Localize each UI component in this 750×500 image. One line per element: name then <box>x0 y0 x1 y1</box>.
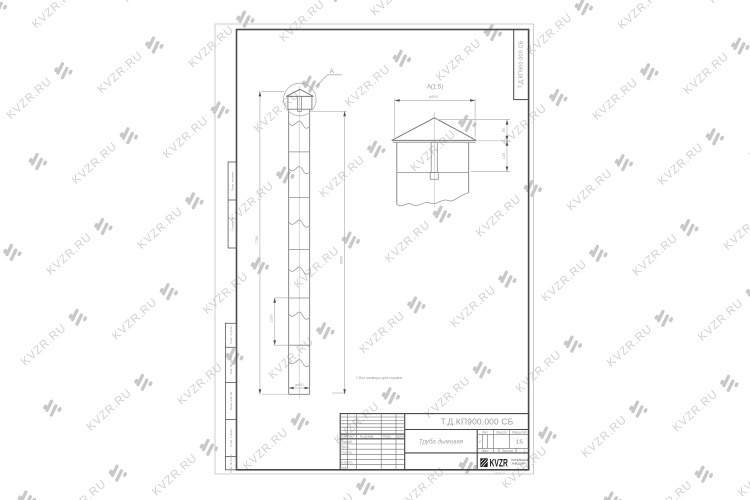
svg-text:KVZR.RU: KVZR.RU <box>682 51 732 97</box>
svg-text:Масса: Масса <box>496 430 506 434</box>
svg-text:7760: 7760 <box>255 236 259 244</box>
svg-text:KVZR.RU: KVZR.RU <box>110 296 160 342</box>
svg-text:№ докум.: № докум. <box>360 435 374 439</box>
svg-text:1 Все размеры для справок: 1 Все размеры для справок <box>356 376 403 380</box>
svg-text:KVZR.RU: KVZR.RU <box>525 11 575 57</box>
svg-text:Справ. №: Справ. № <box>230 216 234 230</box>
svg-text:1: 1 <box>524 449 526 453</box>
svg-text:KVZR.RU: KVZR.RU <box>605 323 655 369</box>
svg-text:80: 80 <box>502 128 506 132</box>
svg-text:KVZR.RU: KVZR.RU <box>696 297 746 343</box>
svg-text:KVZR.RU: KVZR.RU <box>358 310 408 356</box>
svg-text:Лист: Лист <box>348 435 355 439</box>
svg-text:Инв. № дубл.: Инв. № дубл. <box>229 355 233 374</box>
svg-text:Дата: Дата <box>397 435 404 439</box>
svg-text:KVZR.RU: KVZR.RU <box>474 193 524 239</box>
svg-text:KVZR.RU: KVZR.RU <box>70 140 120 186</box>
svg-text:KVZR.RU: KVZR.RU <box>631 232 681 278</box>
svg-text:KVZR.RU: KVZR.RU <box>409 128 459 174</box>
svg-text:KVZR.RU: KVZR.RU <box>161 115 211 161</box>
svg-text:KVZR.RU: KVZR.RU <box>616 0 666 32</box>
svg-text:KVZR: KVZR <box>490 457 508 469</box>
svg-text:KVZR.RU: KVZR.RU <box>241 426 291 472</box>
svg-text:KVZR.RU: KVZR.RU <box>96 50 146 96</box>
svg-text:ø890: ø890 <box>429 95 438 99</box>
svg-text:ø450: ø450 <box>295 383 304 387</box>
svg-text:Пров.: Пров. <box>341 445 350 449</box>
svg-text:KVZR.RU: KVZR.RU <box>59 478 109 500</box>
svg-text:KVZR.RU: KVZR.RU <box>318 154 368 200</box>
svg-text:5600: 5600 <box>340 256 344 264</box>
svg-text:Подп.: Подп. <box>383 435 392 439</box>
svg-text:Инв. № подл.: Инв. № подл. <box>229 454 233 473</box>
svg-text:Перв. примен.: Перв. примен. <box>230 171 234 191</box>
svg-text:KVZR.RU: KVZR.RU <box>591 76 641 122</box>
svg-text:KVZR.RU: KVZR.RU <box>514 349 564 395</box>
svg-text:KVZR.RU: KVZR.RU <box>30 0 80 31</box>
svg-text:KVZR.RU: KVZR.RU <box>5 75 55 121</box>
svg-text:Т.Д.КП900.000 СБ: Т.Д.КП900.000 СБ <box>519 40 525 88</box>
svg-text:KVZR.RU: KVZR.RU <box>645 479 695 500</box>
svg-text:Листов: Листов <box>502 449 513 453</box>
svg-text:Подп. и дата: Подп. и дата <box>229 429 233 447</box>
svg-text:KVZR.RU: KVZR.RU <box>369 0 419 19</box>
svg-text:Утв.: Утв. <box>341 466 347 470</box>
svg-text:KVZR.RU: KVZR.RU <box>187 24 237 70</box>
svg-text:Подп. и дата: Подп. и дата <box>229 326 233 344</box>
svg-text:Масштаб: Масштаб <box>512 430 527 434</box>
svg-text:KVZR.RU: KVZR.RU <box>671 388 721 434</box>
svg-text:KVZR.RU: KVZR.RU <box>540 258 590 304</box>
svg-text:KVZR.RU: KVZR.RU <box>19 322 69 368</box>
svg-text:KVZR.RU: KVZR.RU <box>201 270 251 316</box>
svg-text:KVZR.RU: KVZR.RU <box>121 0 171 5</box>
svg-text:У: У <box>479 440 482 444</box>
svg-text:130: 130 <box>502 153 506 159</box>
svg-text:KVZR.RU: KVZR.RU <box>656 141 706 187</box>
svg-text:Лист: Лист <box>481 449 489 453</box>
svg-text:Н.контр.: Н.контр. <box>341 461 353 465</box>
svg-text:KVZR.RU: KVZR.RU <box>580 414 630 460</box>
svg-text:Разраб.: Разраб. <box>341 440 353 444</box>
svg-text:А: А <box>330 69 334 75</box>
svg-text:KVZR.RU: KVZR.RU <box>150 452 200 498</box>
svg-text:KVZR.RU: KVZR.RU <box>722 206 750 252</box>
svg-text:KVZR.RU: KVZR.RU <box>383 219 433 265</box>
svg-text:ЗАВОД.РУ: ЗАВОД.РУ <box>511 461 525 465</box>
svg-text:Труба дымовая: Труба дымовая <box>419 438 464 445</box>
svg-text:KVZR.RU: KVZR.RU <box>307 491 357 500</box>
svg-text:KVZR.RU: KVZR.RU <box>736 453 750 499</box>
svg-text:KVZR.RU: KVZR.RU <box>278 0 328 44</box>
svg-text:А(1:5): А(1:5) <box>427 85 443 91</box>
svg-text:kvzr.ru: kvzr.ru <box>496 471 505 475</box>
svg-text:KVZR.RU: KVZR.RU <box>176 361 226 407</box>
svg-text:KVZR.RU: KVZR.RU <box>449 284 499 330</box>
svg-text:Т.Д.КП900.000 СБ: Т.Д.КП900.000 СБ <box>441 417 514 427</box>
svg-text:KVZR.RU: KVZR.RU <box>434 37 484 83</box>
svg-text:KVZR.RU: KVZR.RU <box>136 205 186 251</box>
svg-text:KVZR.RU: KVZR.RU <box>45 231 95 277</box>
svg-text:KVZR.RU: KVZR.RU <box>85 387 135 433</box>
svg-text:KVZR.RU: KVZR.RU <box>565 167 615 213</box>
svg-text:KVZR.RU: KVZR.RU <box>343 63 393 109</box>
svg-text:Взам. инв. №: Взам. инв. № <box>229 391 233 410</box>
svg-text:1:5: 1:5 <box>516 439 523 445</box>
svg-text:1100: 1100 <box>270 314 274 322</box>
svg-text:Т.контр.: Т.контр. <box>341 450 353 454</box>
svg-text:Лит.: Лит. <box>482 430 488 434</box>
svg-text:KVZR.RU: KVZR.RU <box>707 0 750 6</box>
